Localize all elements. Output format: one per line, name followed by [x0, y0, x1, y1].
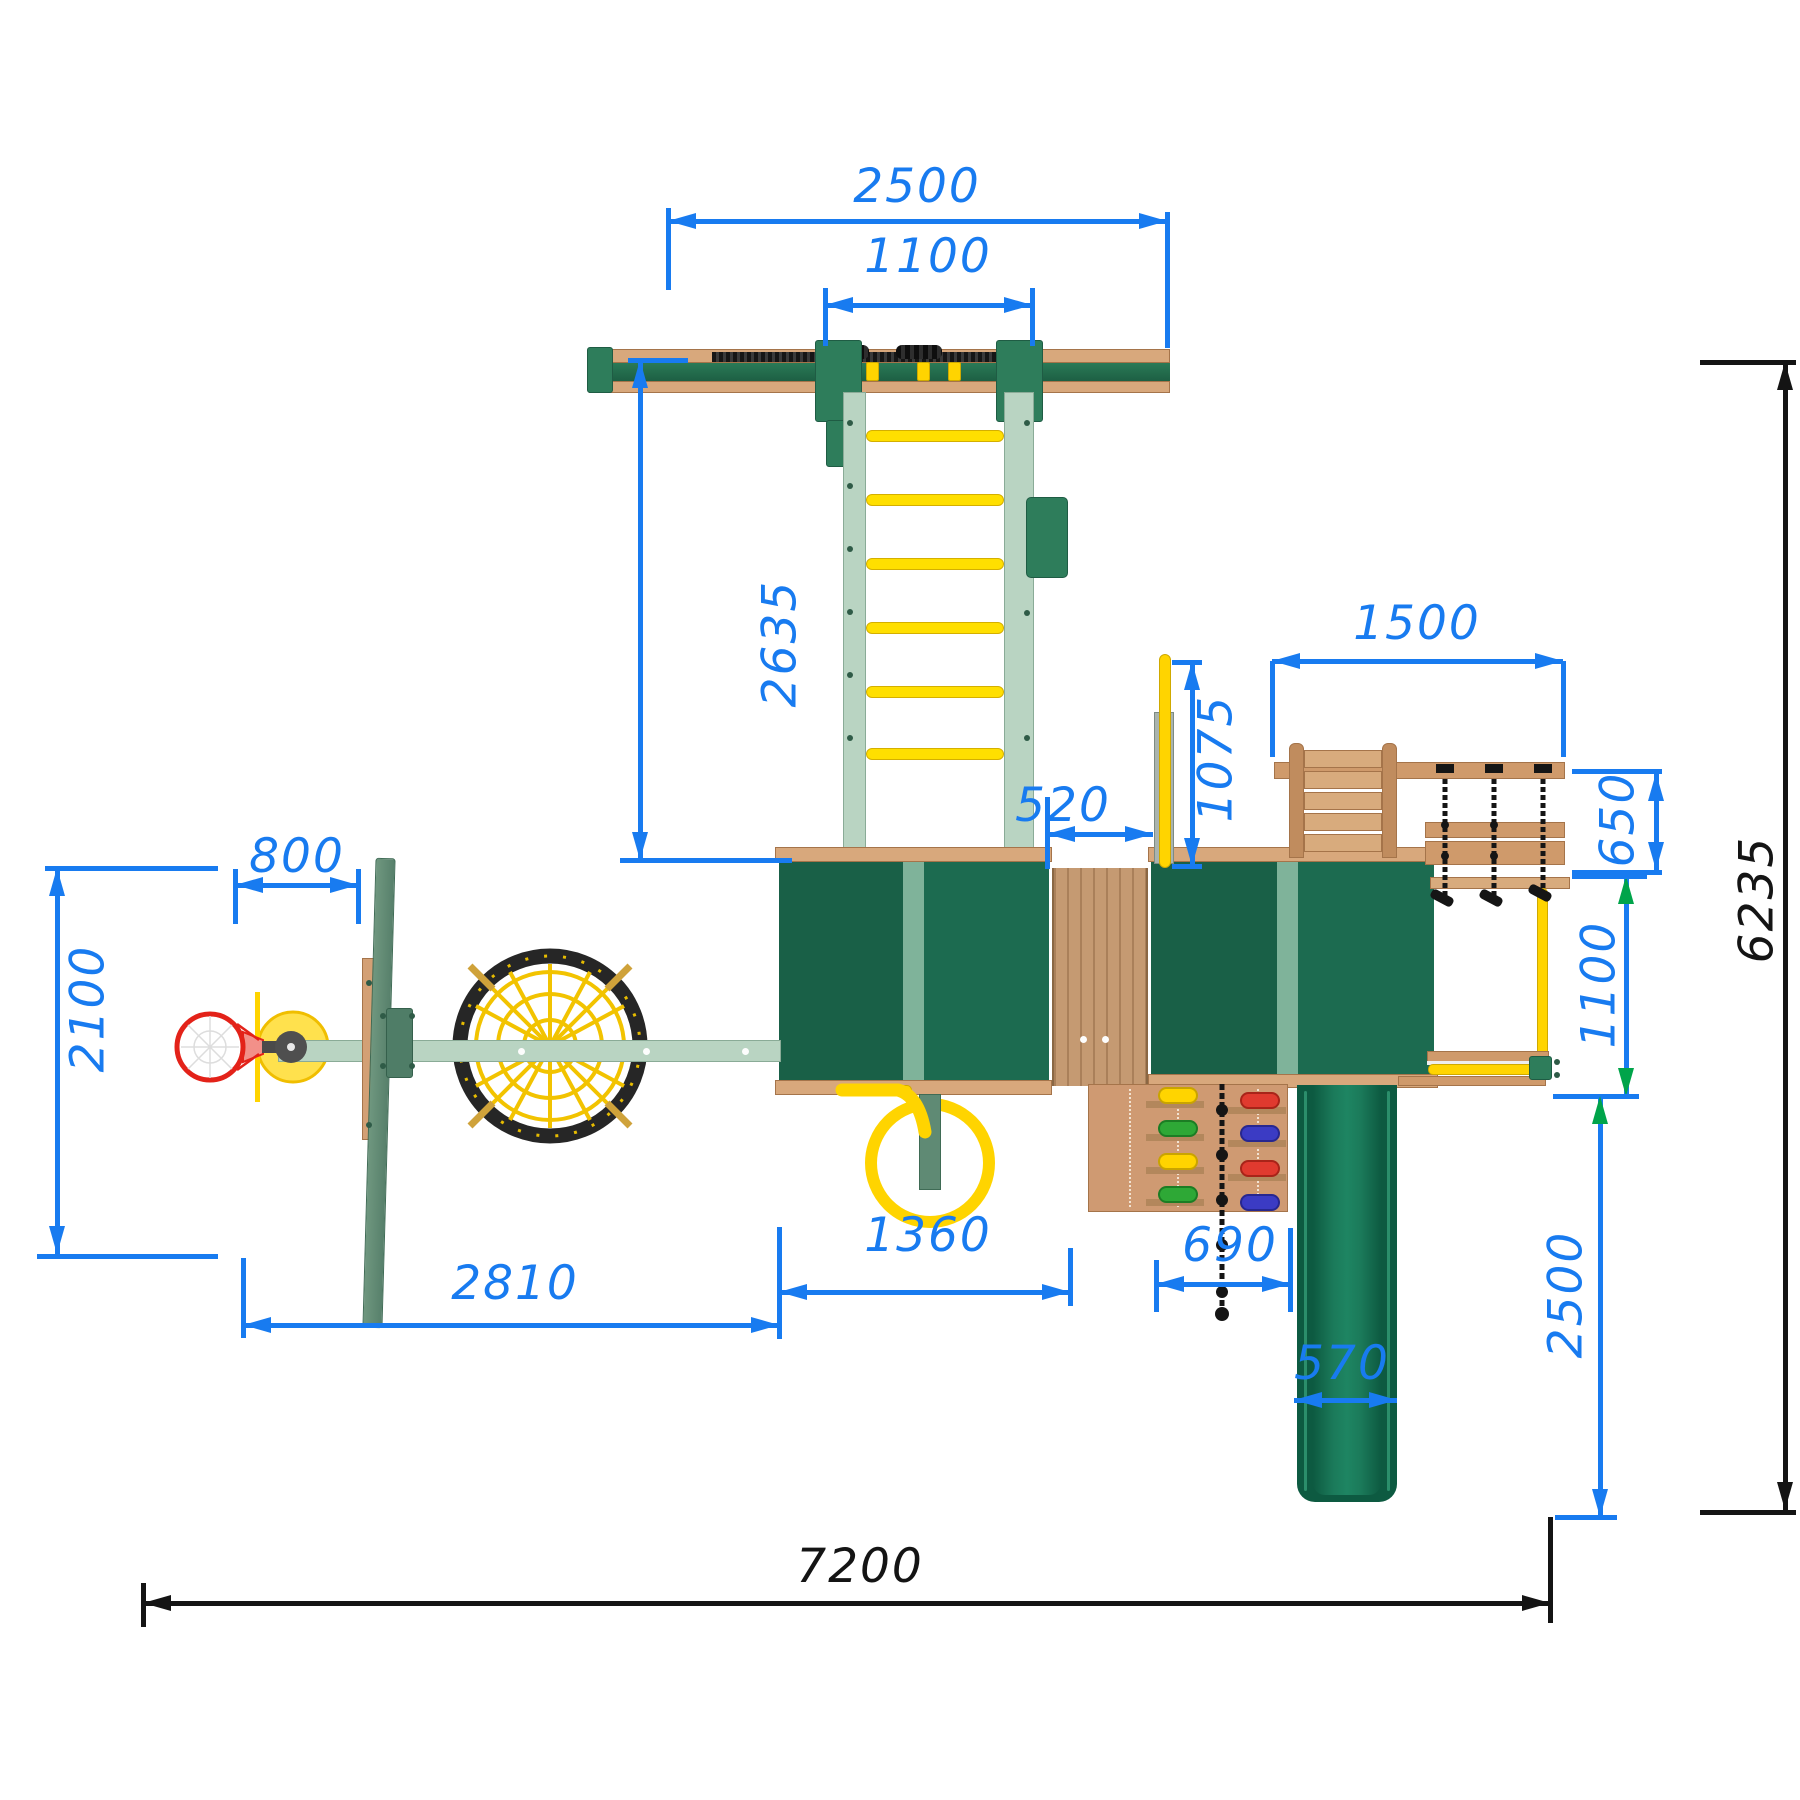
dim-label: 2810 — [415, 1260, 615, 1307]
dim-label: 570 — [1267, 1340, 1417, 1387]
playground-plan-drawing: 2500 1100 2635 800 — [0, 0, 1800, 1800]
dim-label: 2500 — [817, 163, 1017, 210]
dim-label: 520 — [988, 782, 1138, 829]
dim-label: 2635 — [757, 569, 804, 719]
dim-label: 1075 — [1193, 684, 1240, 834]
dimensions: 2500 1100 2635 800 — [0, 0, 1800, 1800]
dim-label: 1360 — [828, 1212, 1028, 1259]
dim-label: 2100 — [65, 934, 112, 1084]
dim-label: 6235 — [1734, 800, 1781, 1000]
dim-label: 1100 — [838, 233, 1018, 280]
dim-label: 1100 — [1576, 910, 1623, 1060]
dim-label: 690 — [1155, 1222, 1305, 1269]
dim-label: 7200 — [760, 1543, 960, 1590]
dim-label: 1500 — [1317, 600, 1517, 647]
dim-label: 800 — [237, 833, 357, 880]
dim-label: 2500 — [1543, 1195, 1590, 1395]
